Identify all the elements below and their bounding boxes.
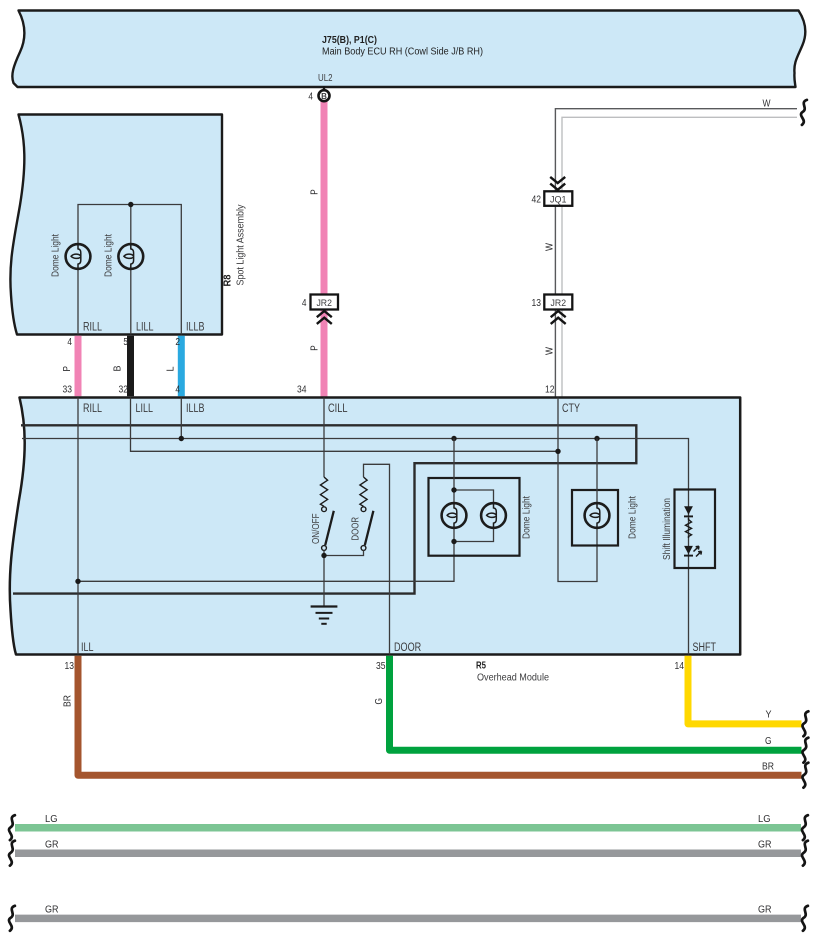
svg-text:W: W bbox=[763, 99, 771, 110]
svg-text:J75(B), P1(C): J75(B), P1(C) bbox=[322, 35, 377, 46]
svg-text:RILL: RILL bbox=[83, 322, 102, 334]
svg-text:Spot Light Assembly: Spot Light Assembly bbox=[236, 204, 247, 285]
svg-text:BR: BR bbox=[762, 761, 774, 772]
svg-text:5: 5 bbox=[123, 337, 128, 348]
svg-text:P: P bbox=[309, 189, 320, 195]
svg-text:GR: GR bbox=[758, 840, 772, 851]
svg-text:ON/OFF: ON/OFF bbox=[311, 514, 322, 545]
svg-text:32: 32 bbox=[119, 385, 129, 396]
svg-text:B: B bbox=[113, 365, 124, 371]
svg-text:4: 4 bbox=[308, 91, 313, 102]
svg-text:34: 34 bbox=[297, 385, 307, 396]
svg-text:JQ1: JQ1 bbox=[550, 194, 567, 204]
svg-text:35: 35 bbox=[376, 661, 386, 672]
svg-text:Y: Y bbox=[766, 710, 772, 721]
svg-text:13: 13 bbox=[65, 661, 75, 672]
svg-text:4: 4 bbox=[175, 385, 180, 396]
svg-text:GR: GR bbox=[45, 905, 59, 916]
svg-text:G: G bbox=[374, 698, 385, 705]
svg-text:Shift Illumination: Shift Illumination bbox=[662, 498, 673, 560]
svg-text:LILL: LILL bbox=[136, 322, 154, 334]
svg-text:ILLB: ILLB bbox=[186, 403, 205, 415]
svg-text:BR: BR bbox=[63, 695, 74, 707]
svg-text:P: P bbox=[309, 345, 320, 351]
svg-text:42: 42 bbox=[532, 195, 542, 206]
svg-text:GR: GR bbox=[758, 905, 772, 916]
svg-text:14: 14 bbox=[675, 661, 685, 672]
svg-text:CILL: CILL bbox=[328, 403, 348, 415]
svg-text:DOOR: DOOR bbox=[394, 642, 421, 654]
svg-text:RILL: RILL bbox=[83, 403, 102, 415]
svg-text:12: 12 bbox=[545, 385, 555, 396]
svg-text:Dome Light: Dome Light bbox=[522, 496, 533, 539]
svg-text:Dome Light: Dome Light bbox=[103, 234, 114, 277]
svg-text:LG: LG bbox=[45, 814, 58, 825]
svg-text:4: 4 bbox=[302, 298, 307, 309]
svg-text:DOOR: DOOR bbox=[351, 517, 362, 541]
svg-text:UL2: UL2 bbox=[318, 73, 333, 84]
svg-text:G: G bbox=[765, 736, 772, 747]
svg-text:ILLB: ILLB bbox=[186, 322, 205, 334]
svg-text:W: W bbox=[545, 243, 556, 251]
svg-text:Main Body ECU RH (Cowl Side J/: Main Body ECU RH (Cowl Side J/B RH) bbox=[322, 47, 483, 58]
svg-text:CTY: CTY bbox=[562, 403, 580, 415]
svg-text:4: 4 bbox=[67, 337, 72, 348]
svg-text:JR2: JR2 bbox=[551, 298, 567, 308]
svg-text:B: B bbox=[321, 91, 327, 101]
svg-text:2: 2 bbox=[175, 337, 180, 348]
svg-text:JR2: JR2 bbox=[316, 298, 332, 308]
svg-text:LG: LG bbox=[758, 814, 771, 825]
svg-text:33: 33 bbox=[63, 385, 73, 396]
svg-text:SHFT: SHFT bbox=[693, 642, 717, 654]
svg-text:R5: R5 bbox=[476, 661, 486, 672]
svg-text:Overhead Module: Overhead Module bbox=[477, 673, 549, 684]
svg-text:GR: GR bbox=[45, 840, 59, 851]
svg-text:L: L bbox=[165, 366, 176, 371]
svg-text:ILL: ILL bbox=[81, 642, 94, 654]
svg-text:P: P bbox=[62, 366, 73, 372]
svg-text:R8: R8 bbox=[223, 274, 234, 286]
svg-text:Dome Light: Dome Light bbox=[628, 496, 639, 539]
svg-text:LILL: LILL bbox=[136, 403, 154, 415]
svg-text:W: W bbox=[545, 347, 556, 355]
svg-text:13: 13 bbox=[532, 298, 542, 309]
svg-text:Dome Light: Dome Light bbox=[51, 234, 62, 277]
